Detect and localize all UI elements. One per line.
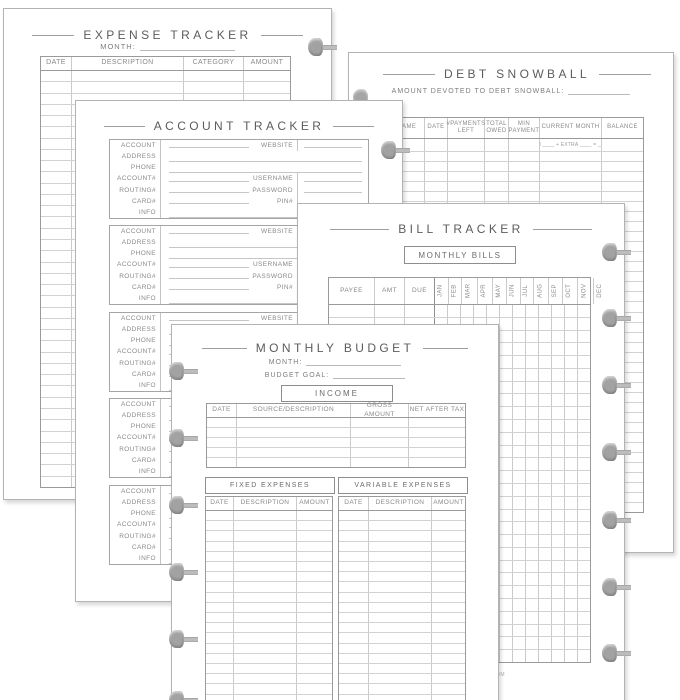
cell (297, 542, 332, 551)
table-row (339, 593, 465, 603)
cell (539, 407, 552, 419)
table-row (339, 521, 465, 531)
cell (339, 664, 369, 673)
cell (565, 625, 578, 637)
cell (234, 562, 297, 571)
cell (552, 497, 565, 509)
cell (244, 71, 290, 81)
cell (513, 331, 526, 343)
cell (565, 433, 578, 445)
cell (41, 296, 72, 306)
cell (432, 644, 465, 653)
cell (369, 572, 432, 581)
cell (500, 394, 513, 406)
cell (578, 497, 590, 509)
table-header-row: PAYEEAMTDUEJANFEBMARAPRMAYJUNJULAUGSEPOC… (329, 278, 590, 305)
cell (339, 644, 369, 653)
binder-disc-icon (602, 644, 632, 662)
cell (526, 420, 539, 432)
cell (552, 382, 565, 394)
cell (206, 664, 234, 673)
field-label: CARD# (110, 282, 161, 293)
month-label: AUG (537, 284, 545, 298)
cell (41, 375, 72, 385)
field-label: WEBSITE (249, 226, 297, 237)
cell (206, 521, 234, 530)
cell (297, 633, 332, 642)
cell (540, 172, 602, 181)
cell (509, 182, 540, 191)
field-label: ADDRESS (110, 497, 161, 508)
cell (339, 521, 369, 530)
cell (41, 263, 72, 273)
cell (539, 369, 552, 381)
cell (234, 633, 297, 642)
disc-cap (308, 38, 323, 56)
disc-cap (169, 563, 184, 581)
cell (509, 172, 540, 181)
cell (297, 644, 332, 653)
cell (184, 71, 244, 81)
cell (409, 438, 465, 447)
fill-in-line (169, 232, 249, 234)
fill-in-line (169, 266, 249, 268)
table-row (370, 172, 643, 182)
field-label: CARD# (110, 455, 161, 466)
cell (513, 522, 526, 534)
binder-disc-icon (602, 511, 632, 529)
cell (206, 593, 234, 602)
column-header: #PAYMENTS LEFT (448, 118, 485, 138)
cell (369, 562, 432, 571)
table-row (339, 511, 465, 521)
fill-in-line (169, 202, 249, 204)
table-row (206, 552, 332, 562)
cell (41, 432, 72, 442)
cell (369, 521, 432, 530)
table-row (206, 623, 332, 633)
cell (41, 161, 72, 171)
cell (339, 695, 369, 700)
cell (565, 612, 578, 624)
table-row (207, 428, 465, 438)
cell (513, 510, 526, 522)
cell (41, 139, 72, 149)
cell (206, 531, 234, 540)
budget-month-line: MONTH: (172, 358, 498, 366)
cell (432, 542, 465, 551)
account-row: ACCOUNT#USERNAME (110, 173, 368, 184)
cell (206, 644, 234, 653)
cell (565, 356, 578, 368)
cell (206, 684, 234, 693)
disc-cap (169, 691, 184, 700)
goal-blank-line (333, 371, 405, 379)
table-row (339, 633, 465, 643)
cell (500, 522, 513, 534)
cell (297, 593, 332, 602)
cell (206, 572, 234, 581)
month-label: SEP (552, 284, 560, 297)
cell (513, 548, 526, 560)
cell (234, 674, 297, 683)
cell (539, 612, 552, 624)
cell (207, 428, 237, 437)
column-header: SEP (549, 278, 563, 304)
variable-expenses-box: VARIABLE EXPENSES (338, 477, 468, 494)
cell (539, 497, 552, 509)
field-label: ADDRESS (110, 151, 161, 162)
table-row (206, 521, 332, 531)
fill-in-line (169, 319, 249, 321)
column-header: MAY (493, 278, 508, 304)
field-label: ADDRESS (110, 410, 161, 421)
cell (526, 497, 539, 509)
field-label: ROUTING# (110, 271, 161, 282)
cell (552, 433, 565, 445)
cell (448, 139, 485, 151)
cell (448, 305, 461, 317)
cell (602, 152, 643, 161)
cell (526, 356, 539, 368)
cell (297, 552, 332, 561)
cell (206, 542, 234, 551)
right-line-cell (297, 185, 368, 196)
cell (539, 382, 552, 394)
cell (432, 684, 465, 693)
month-label: JUL (523, 285, 531, 297)
field-label: ACCOUNT (110, 226, 161, 237)
column-header: MAR (462, 278, 478, 304)
cell (509, 162, 540, 171)
cell (500, 625, 513, 637)
cell (539, 586, 552, 598)
field-label: USERNAME (249, 173, 297, 184)
table-row (339, 562, 465, 572)
debt-title-row: DEBT SNOWBALL (383, 67, 651, 81)
cell (41, 386, 72, 396)
field-label: ROUTING# (110, 531, 161, 542)
column-header: JUN (507, 278, 521, 304)
cell (552, 356, 565, 368)
table-row (206, 644, 332, 654)
cell (539, 625, 552, 637)
cell (500, 369, 513, 381)
cell (539, 522, 552, 534)
cell (41, 353, 72, 363)
cell (234, 521, 297, 530)
field-label: PASSWORD (249, 271, 297, 282)
column-header: GROSS AMOUNT (351, 404, 409, 417)
cell (297, 582, 332, 591)
cell (432, 654, 465, 663)
cell (41, 319, 72, 329)
cell (578, 407, 590, 419)
cell (425, 139, 448, 151)
cell (432, 521, 465, 530)
cell (552, 305, 565, 317)
column-header: CURRENT MONTH (540, 118, 602, 138)
cell (369, 603, 432, 612)
cell (513, 369, 526, 381)
cell (351, 428, 409, 437)
cell (206, 674, 234, 683)
cell (41, 206, 72, 216)
table-row (329, 305, 590, 318)
cell (540, 182, 602, 191)
fill-in-line (169, 180, 249, 182)
cell (432, 562, 465, 571)
cell (369, 582, 432, 591)
cell (500, 586, 513, 598)
cell (552, 331, 565, 343)
cell (369, 664, 432, 673)
cell (578, 471, 590, 483)
cell (526, 446, 539, 458)
cell (578, 548, 590, 560)
table-row (206, 674, 332, 684)
cell (513, 420, 526, 432)
table-row (206, 664, 332, 674)
cell (500, 599, 513, 611)
column-header: SOURCE/DESCRIPTION (237, 404, 351, 417)
binder-disc-icon (602, 376, 632, 394)
cell (552, 586, 565, 598)
cell (565, 599, 578, 611)
cell (565, 343, 578, 355)
cell (578, 369, 590, 381)
cell (41, 409, 72, 419)
cell (539, 548, 552, 560)
cell (526, 369, 539, 381)
cell (244, 82, 290, 92)
cell (41, 94, 72, 104)
field-label: ROUTING# (110, 185, 161, 196)
binder-disc-icon (602, 578, 632, 596)
cell (237, 418, 351, 427)
table-row (207, 448, 465, 458)
cell (500, 573, 513, 585)
cell (539, 599, 552, 611)
cell (513, 356, 526, 368)
table-row (339, 664, 465, 674)
cell (565, 394, 578, 406)
right-line-cell (297, 140, 368, 151)
cell (448, 172, 485, 181)
cell (526, 407, 539, 419)
month-label: MAY (496, 284, 504, 298)
cell (297, 623, 332, 632)
column-header: APR (478, 278, 493, 304)
cell (526, 612, 539, 624)
fill-in-line (169, 191, 249, 193)
cell (369, 674, 432, 683)
disc-cap (602, 578, 617, 596)
cell (234, 552, 297, 561)
cell (485, 152, 509, 161)
cell (552, 369, 565, 381)
cell (297, 511, 332, 520)
cell (526, 305, 539, 317)
cell (369, 654, 432, 663)
title-rule-right (533, 229, 592, 230)
cell (206, 654, 234, 663)
debt-subtitle-blank-line (568, 87, 630, 95)
cell (552, 484, 565, 496)
cell (578, 356, 590, 368)
cell (513, 573, 526, 585)
cell (41, 71, 72, 81)
cell (369, 684, 432, 693)
disc-cap (602, 511, 617, 529)
table-row (206, 511, 332, 521)
field-label: PIN# (249, 282, 297, 293)
cell (578, 522, 590, 534)
cell (485, 162, 509, 171)
cell (409, 428, 465, 437)
cell (234, 582, 297, 591)
monthly-bills-box: MONTHLY BILLS (404, 246, 516, 264)
field-label: PHONE (110, 335, 161, 346)
cell (41, 251, 72, 261)
table-row (206, 531, 332, 541)
cell (369, 613, 432, 622)
cell (552, 407, 565, 419)
cell (206, 633, 234, 642)
cell (41, 184, 72, 194)
disc-cap (602, 243, 617, 261)
account-page-title: ACCOUNT TRACKER (154, 119, 325, 133)
column-header: DATE (206, 497, 234, 510)
debt-page-title: DEBT SNOWBALL (444, 67, 590, 81)
table-row (339, 603, 465, 613)
cell (526, 625, 539, 637)
budget-goal-line: BUDGET GOAL: (172, 371, 498, 379)
table-row (206, 572, 332, 582)
cell (297, 572, 332, 581)
cell (513, 433, 526, 445)
cell (500, 305, 513, 317)
fill-in-line (169, 288, 249, 290)
month-label: DEC (597, 284, 605, 298)
field-label: ACCOUNT# (110, 346, 161, 357)
cell (539, 573, 552, 585)
cell (425, 162, 448, 171)
table-row (339, 695, 465, 700)
cell (539, 433, 552, 445)
cell (474, 305, 487, 317)
account-title-row: ACCOUNT TRACKER (104, 119, 374, 133)
cell (513, 586, 526, 598)
cell (369, 644, 432, 653)
disc-cap (602, 376, 617, 394)
cell (339, 654, 369, 663)
cell (565, 305, 578, 317)
cell (578, 586, 590, 598)
table-row (339, 654, 465, 664)
cell (578, 458, 590, 470)
cell (578, 331, 590, 343)
table-row (339, 623, 465, 633)
field-label: INFO (110, 293, 161, 304)
cell (565, 471, 578, 483)
cell (552, 458, 565, 470)
cell (526, 535, 539, 547)
cell (41, 477, 72, 487)
cell (602, 172, 643, 181)
cell (432, 531, 465, 540)
cell (526, 650, 539, 662)
month-blank-line (306, 358, 401, 366)
table-header-row: DEBT NAMEDATE#PAYMENTS LEFTTOTAL OWEDMIN… (370, 118, 643, 139)
cell (234, 695, 297, 700)
field-label: PASSWORD (249, 185, 297, 196)
bill-page-title: BILL TRACKER (398, 222, 524, 236)
cell (552, 420, 565, 432)
cell (432, 613, 465, 622)
expense-title-row: EXPENSE TRACKER (32, 28, 303, 42)
cell (485, 192, 509, 201)
disc-cap (602, 309, 617, 327)
cell (339, 542, 369, 551)
table-row (339, 684, 465, 694)
variable-expenses-table: DATEDESCRIPTIONAMOUNT (338, 496, 466, 700)
column-header: DATE (41, 57, 72, 70)
cell (297, 664, 332, 673)
cell (513, 471, 526, 483)
cell (339, 531, 369, 540)
cell (539, 394, 552, 406)
cell (540, 162, 602, 171)
cell (578, 510, 590, 522)
cell (539, 510, 552, 522)
cell (485, 172, 509, 181)
debt-subtitle-label: AMOUNT DEVOTED TO DEBT SNOWBALL: (392, 88, 565, 95)
cell (526, 318, 539, 330)
field-label: ACCOUNT (110, 313, 161, 324)
cell (339, 633, 369, 642)
cell (206, 603, 234, 612)
cell (41, 285, 72, 295)
cell (234, 603, 297, 612)
table-row (207, 418, 465, 428)
cell (539, 446, 552, 458)
table-row (206, 684, 332, 694)
title-rule-left (202, 348, 247, 349)
cell (578, 612, 590, 624)
cell (207, 458, 237, 467)
cell (565, 510, 578, 522)
cell (513, 612, 526, 624)
column-header: DESCRIPTION (72, 57, 184, 70)
cell (578, 318, 590, 330)
cell (565, 497, 578, 509)
cell (552, 650, 565, 662)
cell (578, 637, 590, 649)
cell (578, 535, 590, 547)
cell (602, 192, 643, 201)
table-header-row: DATEDESCRIPTIONCATEGORYAMOUNT (41, 57, 290, 71)
disc-cap (169, 630, 184, 648)
cell (432, 593, 465, 602)
field-label: ADDRESS (110, 324, 161, 335)
cell (565, 548, 578, 560)
cell (578, 420, 590, 432)
cell (41, 217, 72, 227)
cell (578, 484, 590, 496)
title-rule-left (330, 229, 389, 230)
column-header: JAN (435, 278, 449, 304)
